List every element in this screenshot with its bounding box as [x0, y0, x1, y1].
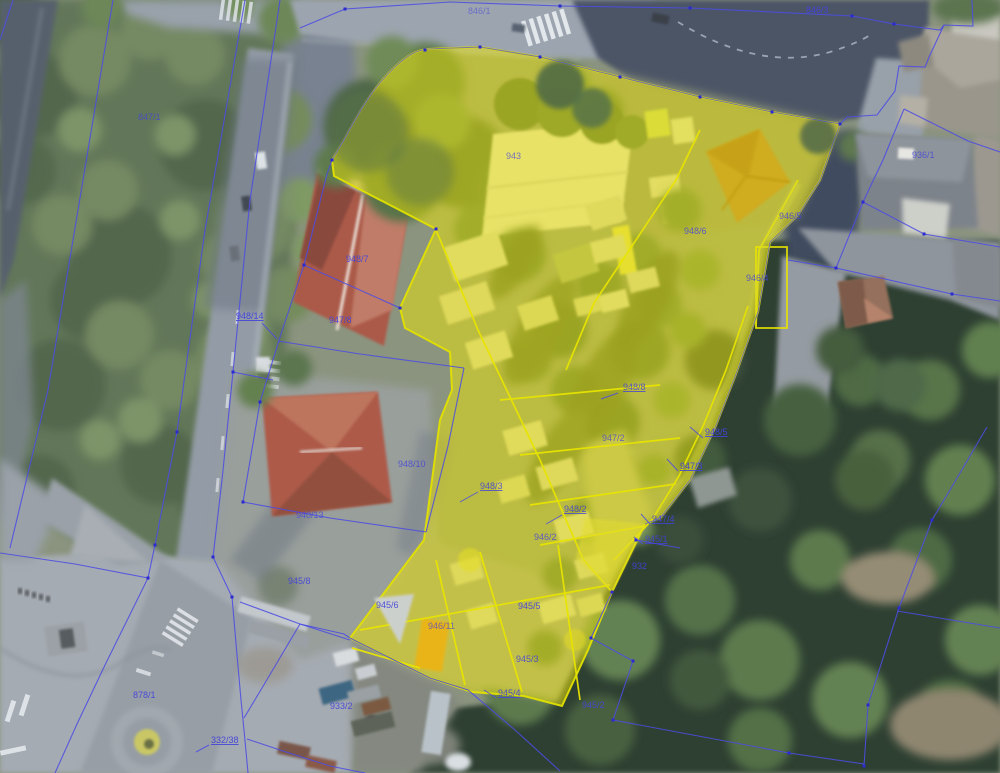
svg-text:945/6: 945/6	[376, 600, 399, 610]
svg-text:936/1: 936/1	[912, 150, 935, 160]
svg-text:945/4: 945/4	[498, 688, 521, 698]
svg-text:945/8: 945/8	[288, 576, 311, 586]
svg-text:932: 932	[632, 561, 647, 571]
svg-text:933/2: 933/2	[330, 701, 353, 711]
svg-text:846/1: 846/1	[468, 6, 491, 16]
svg-text:947/3: 947/3	[680, 461, 703, 471]
svg-text:947/8: 947/8	[329, 315, 352, 325]
svg-text:332/38: 332/38	[211, 735, 239, 745]
svg-text:948/10: 948/10	[398, 459, 426, 469]
svg-text:946/11: 946/11	[428, 621, 455, 631]
svg-text:847/1: 847/1	[138, 112, 161, 122]
svg-text:945/5: 945/5	[518, 601, 541, 611]
svg-text:947/2: 947/2	[602, 433, 625, 443]
svg-text:948/14: 948/14	[236, 311, 264, 321]
svg-text:946/2: 946/2	[534, 532, 557, 542]
svg-text:948/6: 948/6	[684, 226, 707, 236]
svg-text:846/3: 846/3	[806, 5, 829, 15]
svg-text:948/5: 948/5	[705, 427, 728, 437]
svg-text:947/4: 947/4	[652, 514, 675, 524]
svg-text:946/4: 946/4	[746, 273, 769, 283]
svg-text:948/2: 948/2	[564, 504, 587, 514]
svg-text:945/3: 945/3	[516, 654, 539, 664]
svg-text:943: 943	[506, 151, 521, 161]
svg-text:948/3: 948/3	[480, 481, 503, 491]
svg-text:948/7: 948/7	[346, 254, 369, 264]
svg-text:945/2: 945/2	[582, 700, 605, 710]
svg-text:946/5: 946/5	[779, 211, 802, 221]
svg-text:878/1: 878/1	[133, 690, 156, 700]
svg-text:948/8: 948/8	[623, 382, 646, 392]
svg-text:945/1: 945/1	[645, 534, 668, 544]
svg-text:940/13: 940/13	[296, 510, 324, 520]
